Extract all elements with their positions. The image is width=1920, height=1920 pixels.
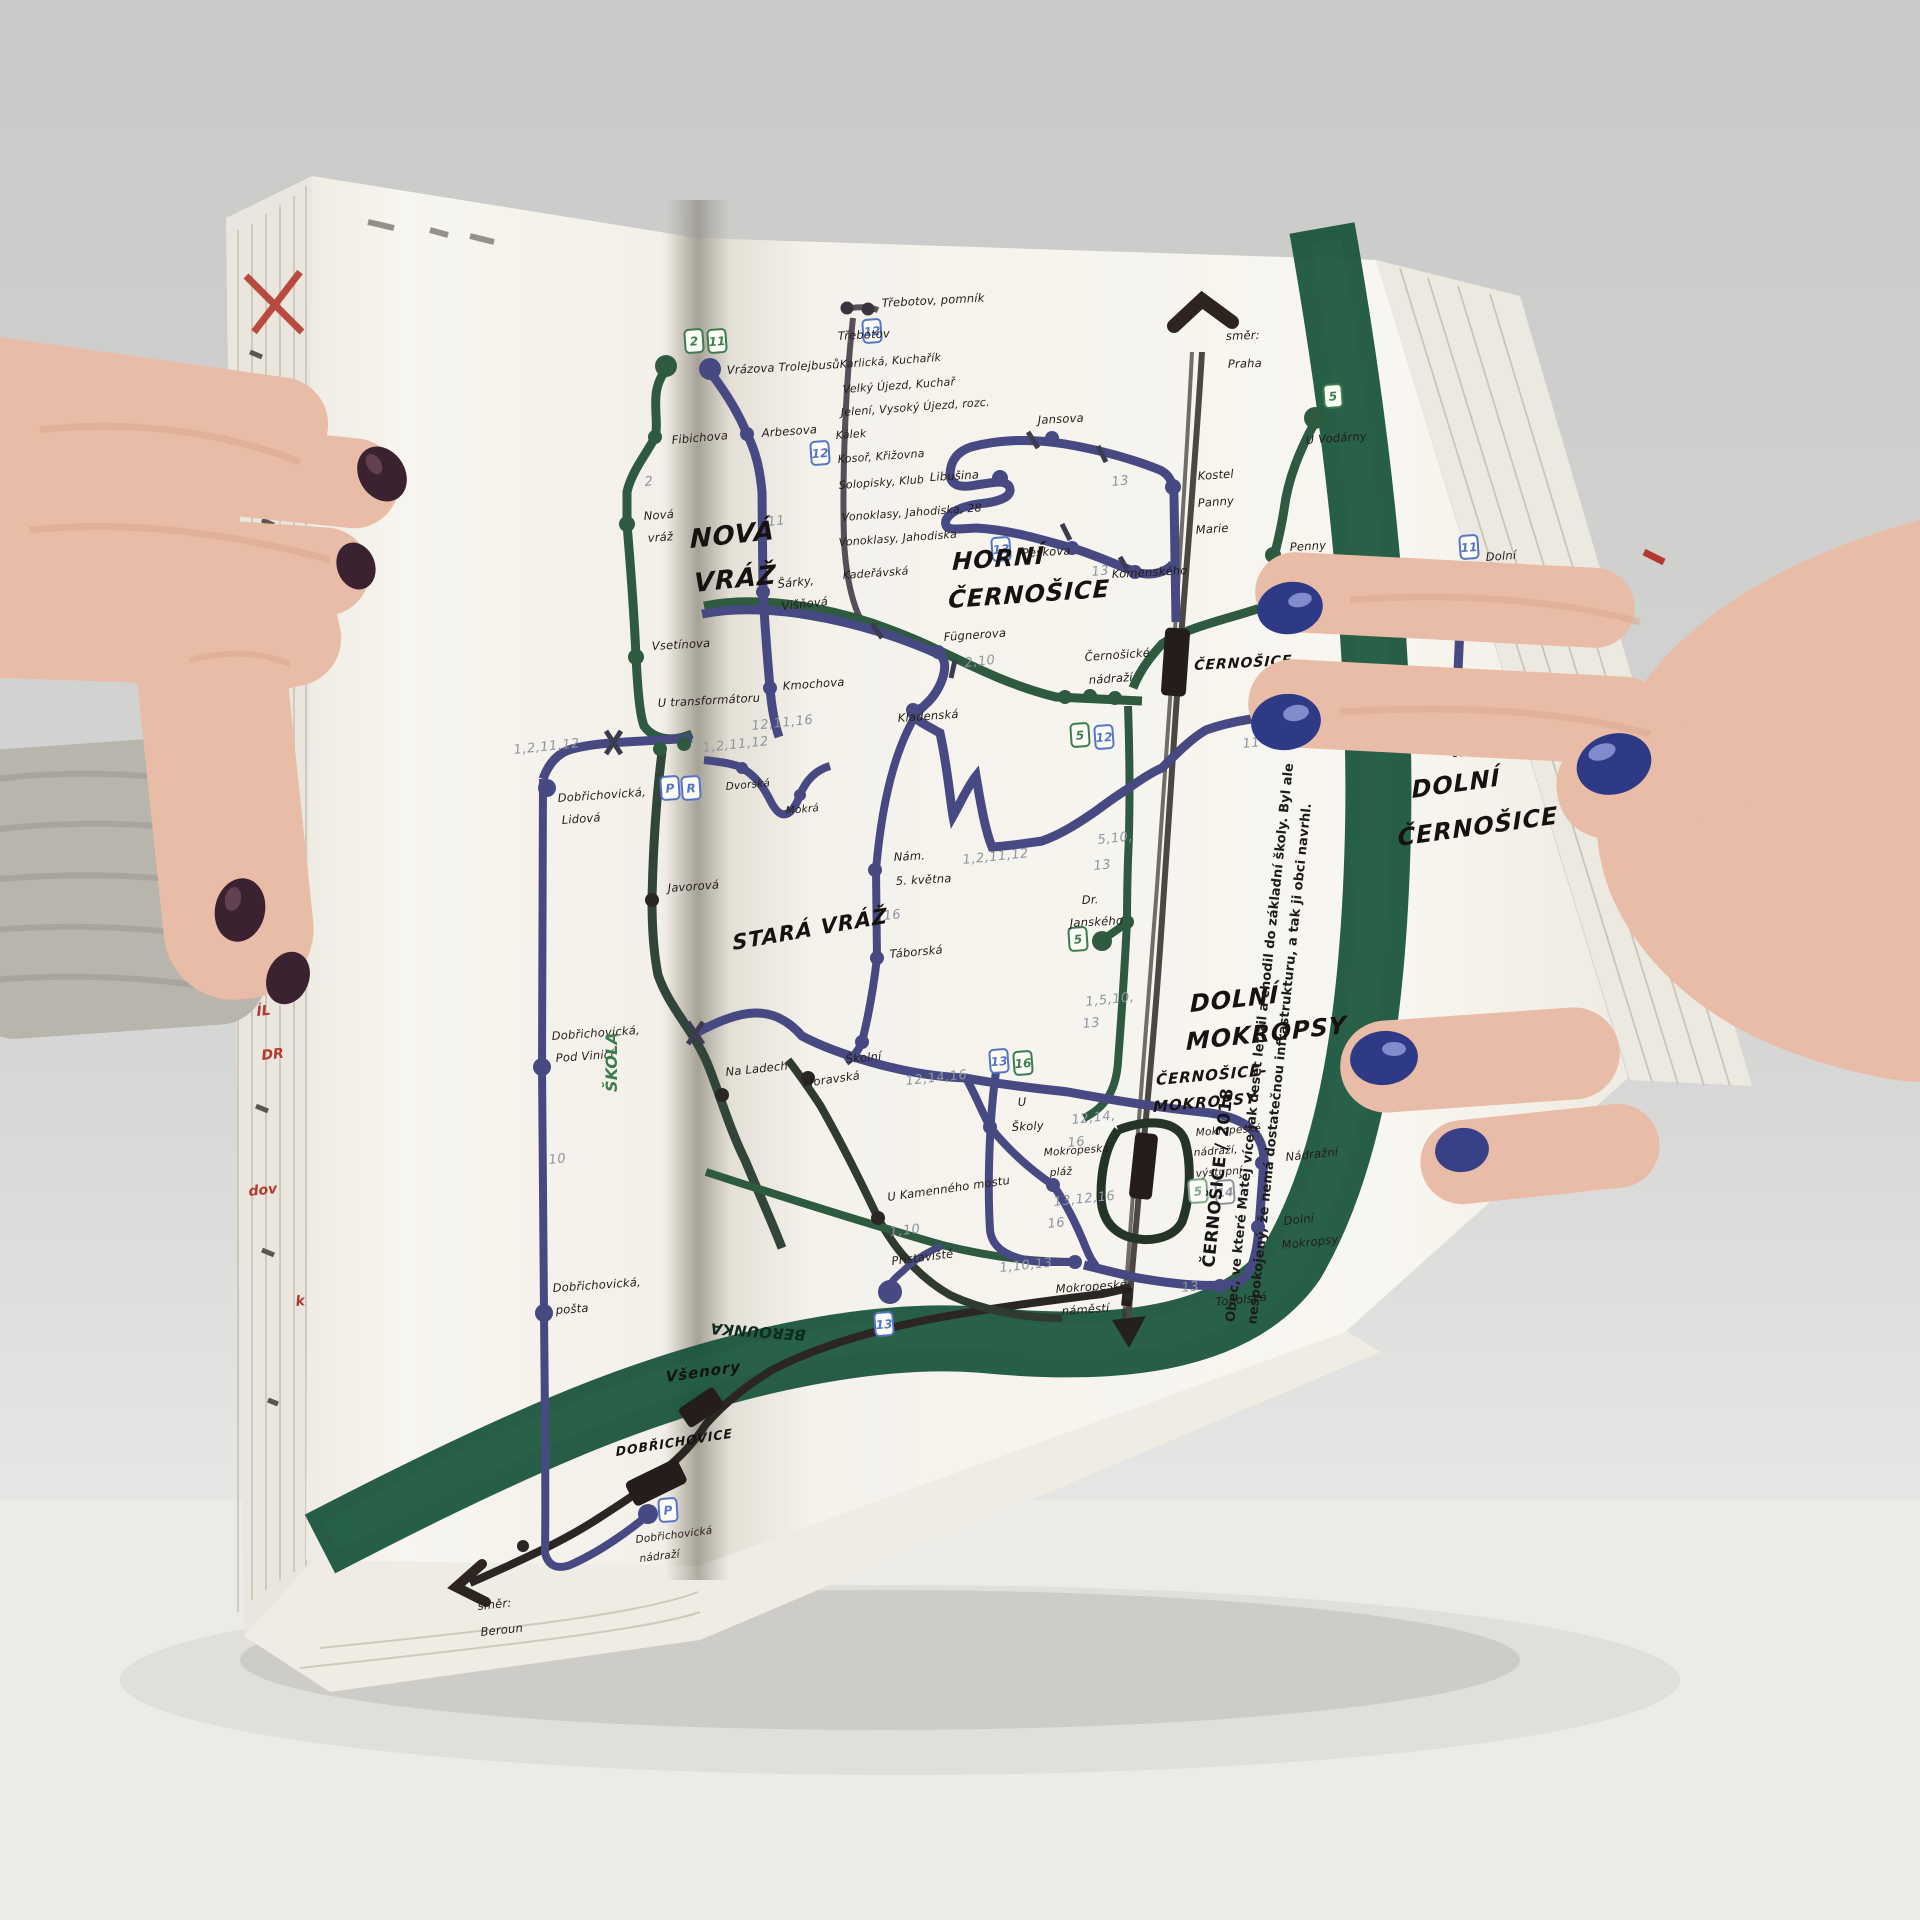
stop-label: Školy xyxy=(1011,1117,1044,1134)
edge-mark: DR xyxy=(261,1046,285,1064)
stop-label: Kálek xyxy=(835,427,867,442)
route-badge-number: 5 xyxy=(1073,932,1082,947)
stop-dot xyxy=(638,1504,658,1524)
route-badge-number: R xyxy=(686,781,696,796)
route-badge-number: 13 xyxy=(875,1317,893,1332)
stop-label: vráž xyxy=(647,529,674,545)
stop-dot xyxy=(1123,1292,1133,1302)
route-badge: 5 xyxy=(1323,384,1343,408)
route-badge: 12 xyxy=(1094,725,1114,749)
stop-dot xyxy=(736,762,748,774)
route-badge: R xyxy=(681,776,701,800)
stop-label: Dolní xyxy=(1485,548,1518,564)
route-badge: 13 xyxy=(874,1312,894,1336)
stop-dot xyxy=(1046,1178,1060,1192)
stop-dot xyxy=(794,789,806,801)
stop-label: Janského xyxy=(1067,913,1123,930)
stop-label: ŠKOLA xyxy=(601,1032,621,1092)
stop-dot xyxy=(648,430,662,444)
stop-dot xyxy=(740,427,754,441)
route-badge: 13 xyxy=(989,1049,1009,1073)
stop-dot xyxy=(645,893,659,907)
route-badge: 16 xyxy=(1013,1051,1033,1075)
stop-dot xyxy=(655,355,677,377)
pencil-number: 13 xyxy=(1181,1279,1200,1296)
pencil-number: 13 xyxy=(1093,857,1112,874)
route-badge: P xyxy=(660,776,680,800)
route-badge-number: P xyxy=(663,1503,673,1518)
stop-label: Nám. xyxy=(893,848,925,864)
stop-dot xyxy=(855,1035,869,1049)
pencil-number: 2 xyxy=(644,474,654,490)
route-badge-number: 12 xyxy=(811,446,829,461)
stop-label: Jansova xyxy=(1035,411,1084,427)
stop-label: Kostel xyxy=(1197,466,1235,483)
stop-dot xyxy=(533,1058,551,1076)
stop-dot xyxy=(871,1211,885,1225)
stop-dot xyxy=(763,681,777,695)
route-badge: 12 xyxy=(810,441,830,465)
stop-dot xyxy=(1165,479,1181,495)
route-badge-number: 5 xyxy=(1328,389,1337,404)
stop-dot xyxy=(1108,691,1122,705)
route-badge-number: 13 xyxy=(990,1054,1008,1069)
stop-dot xyxy=(677,737,691,751)
route-badge-number: 16 xyxy=(1014,1056,1032,1071)
route-badge-number: P xyxy=(665,781,675,796)
stop-dot xyxy=(517,1540,529,1552)
stop-dot xyxy=(1083,689,1097,703)
stop-dot xyxy=(535,1304,553,1322)
pencil-number: 13 xyxy=(1082,1015,1101,1032)
route-badge: 5 xyxy=(1188,1179,1208,1203)
pencil-number: 13 xyxy=(1111,473,1130,490)
stop-label: pošta xyxy=(554,1301,589,1317)
route-badge-number: 5 xyxy=(1193,1184,1202,1199)
route-badge: 11 xyxy=(707,329,727,353)
route-badge: P xyxy=(658,1498,678,1522)
stop-dot xyxy=(1213,1279,1227,1293)
stop-dot xyxy=(699,358,721,380)
pencil-number: 10 xyxy=(548,1151,567,1168)
stop-dot xyxy=(882,1284,898,1300)
station-cernosice xyxy=(1161,627,1191,697)
left-page xyxy=(306,176,698,1566)
stop-dot xyxy=(1068,1255,1082,1269)
stop-label: Libušina xyxy=(929,467,979,484)
stop-label: Dr. xyxy=(1081,892,1099,907)
stop-label: směr: xyxy=(1226,328,1260,343)
edge-mark: ÍL xyxy=(256,1002,272,1020)
route-badge: 11 xyxy=(1459,535,1479,559)
stop-label: Třebotov xyxy=(837,326,890,343)
stop-dot xyxy=(628,649,644,665)
stop-dot xyxy=(1092,931,1112,951)
stop-label: Penny xyxy=(1289,538,1326,554)
stop-dot xyxy=(1058,690,1072,704)
stop-dot xyxy=(538,779,556,797)
stop-label: U xyxy=(1017,1095,1027,1109)
stop-label: Panny xyxy=(1197,493,1234,510)
stop-dot xyxy=(868,863,882,877)
stop-dot xyxy=(653,742,667,756)
book-photo-scene: 2111212135512513165141113PRP 2111,2,11,1… xyxy=(0,0,1920,1920)
stop-dot xyxy=(1045,431,1059,445)
route-badge: 2 xyxy=(684,329,704,353)
stop-label: Marie xyxy=(1195,521,1229,537)
route-badge-number: 2 xyxy=(689,334,698,349)
stop-label: Lidová xyxy=(561,810,601,827)
stop-dot xyxy=(992,470,1008,486)
stop-label: pláž xyxy=(1048,1165,1072,1179)
stop-label: Praha xyxy=(1228,356,1263,371)
route-badge: 5 xyxy=(1070,723,1090,747)
stop-dot xyxy=(931,645,945,659)
stop-dot xyxy=(870,951,884,965)
edge-mark: dov xyxy=(248,1181,279,1200)
route-badge-number: 11 xyxy=(708,334,726,349)
photo-canvas: 2111212135512513165141113PRP 2111,2,11,1… xyxy=(0,0,1920,1920)
stop-label: Nová xyxy=(643,507,674,523)
stop-dot xyxy=(1304,407,1326,429)
stop-label: 5. května xyxy=(895,871,951,888)
route-badge: 5 xyxy=(1068,927,1088,951)
stop-dot xyxy=(715,1088,729,1102)
stop-dot xyxy=(619,516,635,532)
route-badge-number: 12 xyxy=(1095,730,1113,745)
route-badge-number: 11 xyxy=(1460,540,1478,555)
route-badge-number: 5 xyxy=(1075,728,1084,743)
pencil-number: 16 xyxy=(1047,1215,1066,1232)
stop-dot xyxy=(983,1120,997,1134)
